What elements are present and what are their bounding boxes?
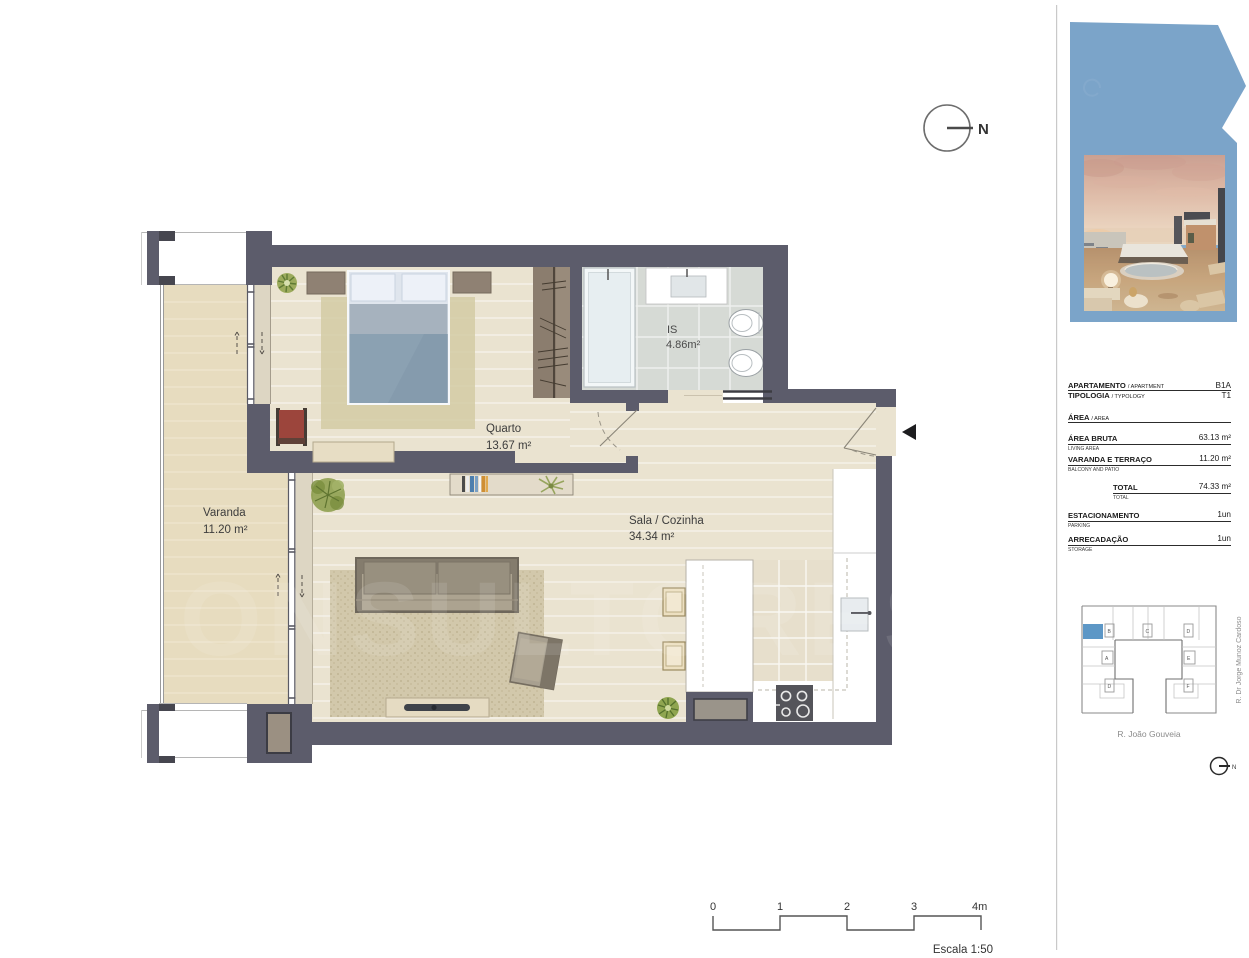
svg-text:4.86m²: 4.86m² — [666, 339, 701, 351]
svg-text:STORAGE: STORAGE — [1068, 547, 1093, 553]
svg-text:ESTACIONAMENTO: ESTACIONAMENTO — [1068, 511, 1140, 520]
svg-text:Varanda: Varanda — [203, 507, 246, 519]
svg-text:0: 0 — [710, 901, 716, 913]
svg-text:T1: T1 — [1221, 391, 1231, 400]
svg-text:F: F — [1187, 684, 1190, 690]
svg-text:BALCONY AND PATIO: BALCONY AND PATIO — [1068, 467, 1119, 473]
svg-text:R. Dr Jorge Munoz Cardoso: R. Dr Jorge Munoz Cardoso — [1236, 616, 1243, 703]
svg-text:R. João Gouveia: R. João Gouveia — [1117, 729, 1181, 739]
svg-text:VARANDA E TERRAÇO: VARANDA E TERRAÇO — [1068, 455, 1152, 464]
svg-text:N: N — [978, 121, 989, 138]
svg-text:1un: 1un — [1217, 534, 1231, 543]
svg-text:74.33 m²: 74.33 m² — [1199, 482, 1232, 491]
svg-text:63.13 m²: 63.13 m² — [1199, 433, 1232, 442]
svg-text:ARRECADAÇÃO: ARRECADAÇÃO — [1068, 535, 1128, 544]
svg-text:11.20 m²: 11.20 m² — [203, 524, 248, 536]
svg-text:D: D — [1187, 629, 1191, 635]
svg-text:4m: 4m — [972, 901, 987, 913]
svg-text:LIVING AREA: LIVING AREA — [1068, 446, 1100, 452]
svg-text:Quarto: Quarto — [486, 423, 521, 435]
svg-text:TOTAL: TOTAL — [1113, 483, 1138, 492]
svg-text:3: 3 — [911, 901, 917, 913]
svg-text:C: C — [1146, 629, 1150, 635]
svg-text:13.67 m²: 13.67 m² — [486, 440, 532, 452]
svg-text:ÁREA BRUTA: ÁREA BRUTA — [1068, 434, 1118, 443]
svg-text:34.34 m²: 34.34 m² — [629, 531, 675, 543]
svg-text:N: N — [1232, 765, 1236, 771]
svg-text:1un: 1un — [1217, 510, 1231, 519]
svg-text:11.20 m²: 11.20 m² — [1199, 454, 1231, 463]
svg-text:1: 1 — [777, 901, 783, 913]
svg-text:Escala 1:50: Escala 1:50 — [933, 944, 993, 956]
svg-text:Sala / Cozinha: Sala / Cozinha — [629, 515, 704, 527]
svg-text:D: D — [1108, 684, 1112, 690]
svg-text:PARKING: PARKING — [1068, 523, 1090, 529]
svg-text:2: 2 — [844, 901, 850, 913]
svg-text:TOTAL: TOTAL — [1113, 495, 1129, 501]
svg-text:IS: IS — [667, 324, 677, 336]
svg-text:ONSULTORES: ONSULTORES — [180, 561, 960, 678]
svg-text:B1A: B1A — [1216, 381, 1232, 390]
